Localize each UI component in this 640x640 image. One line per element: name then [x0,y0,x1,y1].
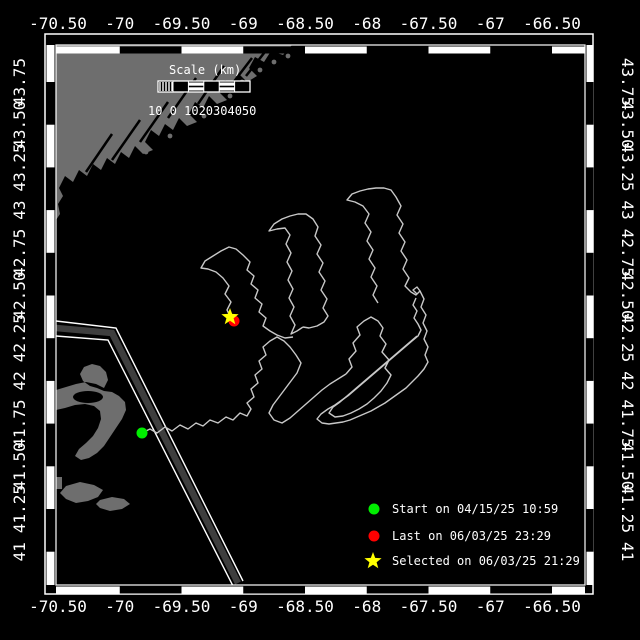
lat-tick-label-left: 41 [10,542,29,561]
lat-tick-label-right: 42.75 [618,229,637,277]
lat-tick-label-right: 43.50 [618,101,637,149]
map-window: { "map": { "bg_color": "#000000", "land_… [0,0,640,640]
map-canvas: -70.50-70.50-70-70-69.50-69.50-69-69-68.… [0,0,640,640]
lat-tick-label-right: 41.25 [618,485,637,533]
lon-tick-label-bottom: -69.50 [153,597,211,616]
lat-tick-label-right: 43.75 [618,58,637,106]
lon-tick-label-bottom: -69 [229,597,258,616]
lon-tick-label-top: -69 [229,14,258,33]
start-marker [137,428,148,439]
lon-tick-label-bottom: -67.50 [400,597,458,616]
lon-tick-label-bottom: -68.50 [276,597,334,616]
lon-tick-label-top: -67.50 [400,14,458,33]
lon-tick-label-top: -68.50 [276,14,334,33]
legend-selected-label: Selected on 06/03/25 21:29 [392,554,580,568]
legend: Start on 04/15/25 10:59 Last on 06/03/25… [364,502,579,568]
scale-bar-title: Scale (km) [169,63,241,77]
lat-tick-label-left: 43 [10,200,29,219]
lon-tick-label-top: -70.50 [29,14,87,33]
lat-tick-label-left: 43.25 [10,143,29,191]
lat-tick-label-left: 41.75 [10,400,29,448]
legend-last-marker [369,531,380,542]
lat-tick-label-right: 42.25 [618,314,637,362]
lon-tick-label-top: -69.50 [153,14,211,33]
lat-tick-label-left: 42.50 [10,271,29,319]
scale-bar-graphic [158,81,250,92]
lat-tick-label-left: 42 [10,371,29,390]
lon-tick-label-bottom: -68 [352,597,381,616]
lat-tick-label-right: 42 [618,371,637,390]
lat-tick-label-right: 41 [618,542,637,561]
legend-last-label: Last on 06/03/25 23:29 [392,529,551,543]
lon-tick-label-top: -67 [476,14,505,33]
lon-tick-label-bottom: -70 [105,597,134,616]
lat-tick-label-right: 41.50 [618,442,637,490]
lat-tick-label-right: 41.75 [618,400,637,448]
lon-tick-label-bottom: -70.50 [29,597,87,616]
lat-tick-label-left: 42.25 [10,314,29,362]
lat-tick-label-left: 43.50 [10,101,29,149]
lat-tick-label-right: 43 [618,200,637,219]
lat-tick-label-left: 42.75 [10,229,29,277]
legend-start-label: Start on 04/15/25 10:59 [392,502,558,516]
lon-tick-label-bottom: -67 [476,597,505,616]
legend-start-marker [369,504,380,515]
lat-tick-label-left: 41.50 [10,442,29,490]
lat-tick-label-right: 43.25 [618,143,637,191]
lon-tick-label-bottom: -66.50 [523,597,581,616]
lon-tick-label-top: -68 [352,14,381,33]
lat-tick-label-right: 42.50 [618,271,637,319]
lon-tick-label-top: -70 [105,14,134,33]
scale-bar-numbers: 10 0 1020304050 [148,104,256,118]
lon-tick-label-top: -66.50 [523,14,581,33]
lat-tick-label-left: 43.75 [10,58,29,106]
lat-tick-label-left: 41.25 [10,485,29,533]
